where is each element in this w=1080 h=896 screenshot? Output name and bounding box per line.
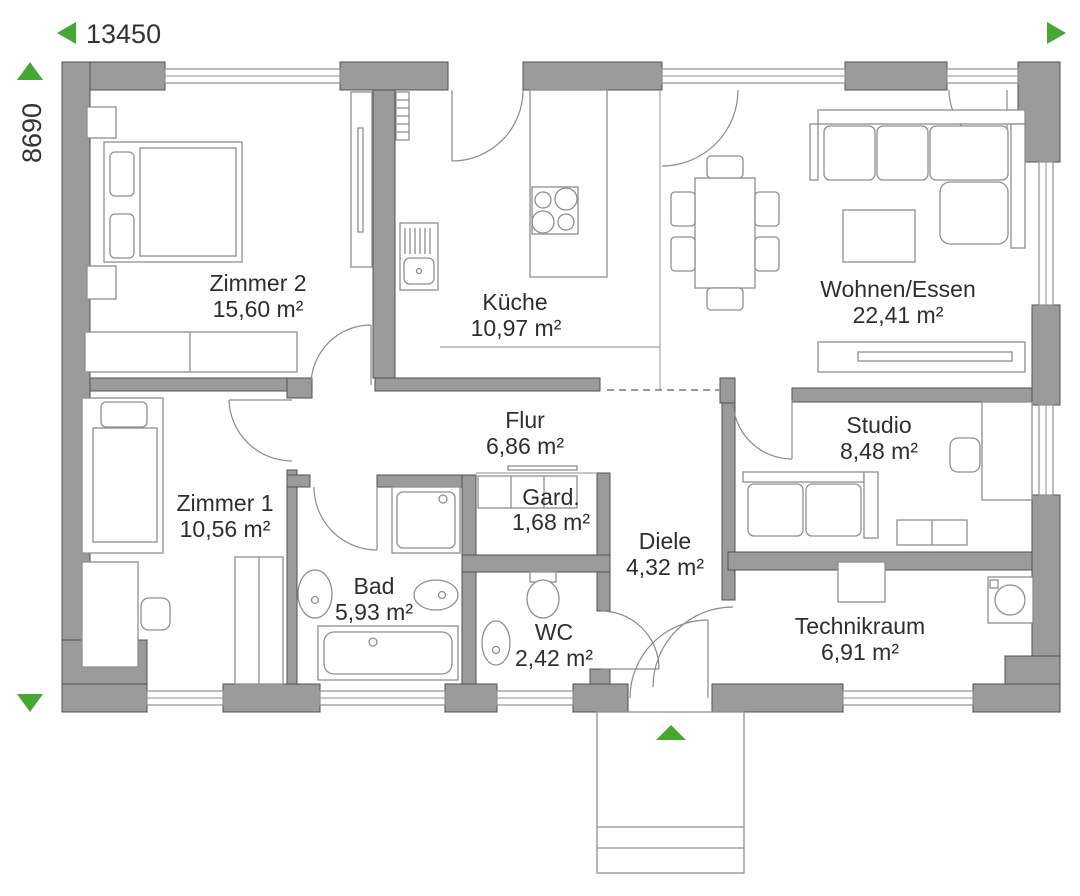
kitchen-counter bbox=[530, 90, 607, 277]
sideboard bbox=[85, 332, 297, 372]
bathtub bbox=[318, 626, 458, 680]
sofa bbox=[743, 472, 878, 538]
window bbox=[1039, 405, 1053, 495]
room-area: 2,42 m² bbox=[515, 645, 593, 671]
chair bbox=[707, 156, 743, 178]
room-area: 4,32 m² bbox=[626, 554, 704, 580]
room-name: Küche bbox=[482, 289, 547, 315]
room-name: Diele bbox=[639, 528, 691, 554]
nightstand bbox=[87, 107, 116, 138]
stove bbox=[532, 187, 578, 234]
room-area: 6,86 m² bbox=[486, 433, 564, 459]
room-name: Bad bbox=[354, 573, 395, 599]
pillow bbox=[110, 152, 134, 196]
room-name: Flur bbox=[505, 407, 545, 433]
mattress bbox=[93, 428, 157, 542]
chair bbox=[141, 598, 170, 630]
washbasin bbox=[414, 580, 458, 610]
chair bbox=[950, 438, 980, 472]
window bbox=[497, 691, 573, 705]
desk bbox=[82, 562, 138, 667]
window bbox=[1039, 162, 1053, 305]
room-name: Studio bbox=[846, 412, 911, 438]
room-name: WC bbox=[535, 619, 573, 645]
room-area: 1,68 m² bbox=[512, 509, 590, 535]
room-area: 8,48 m² bbox=[840, 438, 918, 464]
chair bbox=[671, 192, 695, 226]
room-label-studio: Studio 8,48 m² bbox=[840, 412, 918, 464]
room-label-gard: Gard. 1,68 m² bbox=[512, 484, 590, 535]
window bbox=[147, 691, 223, 705]
heating-unit bbox=[838, 562, 885, 602]
height-dimension-label: 8690 bbox=[17, 103, 47, 163]
room-label-zimmer1: Zimmer 1 10,56 m² bbox=[176, 490, 273, 542]
toilet bbox=[527, 580, 559, 618]
room-area: 5,93 m² bbox=[335, 599, 413, 625]
washbasin bbox=[298, 570, 332, 618]
window bbox=[843, 691, 973, 705]
dining-table bbox=[695, 178, 755, 288]
room-label-zimmer2: Zimmer 2 15,60 m² bbox=[209, 270, 306, 322]
sink-basin bbox=[404, 258, 434, 284]
closet-rail bbox=[508, 466, 577, 470]
window bbox=[165, 69, 340, 83]
desk bbox=[982, 402, 1032, 500]
floor-plan-canvas: 13450 8690 bbox=[0, 0, 1080, 896]
room-area: 10,56 m² bbox=[180, 516, 271, 542]
room-name: Wohnen/Essen bbox=[820, 276, 976, 302]
wardrobe-handle bbox=[358, 128, 363, 232]
chair bbox=[755, 192, 779, 226]
window bbox=[947, 69, 1018, 83]
mattress bbox=[140, 148, 236, 256]
floor-plan: 13450 8690 bbox=[0, 0, 1080, 896]
room-name: Technikraum bbox=[795, 613, 925, 639]
room-name: Zimmer 2 bbox=[209, 270, 306, 296]
chair bbox=[755, 237, 779, 271]
room-area: 15,60 m² bbox=[213, 296, 304, 322]
chair bbox=[671, 237, 695, 271]
width-dimension-label: 13450 bbox=[86, 19, 161, 49]
room-area: 6,91 m² bbox=[821, 639, 899, 665]
pillow bbox=[110, 214, 134, 258]
nightstand bbox=[87, 266, 116, 299]
coffee-table bbox=[843, 210, 915, 262]
window bbox=[320, 691, 445, 705]
chair bbox=[707, 288, 743, 310]
shower bbox=[392, 487, 460, 553]
tv bbox=[858, 352, 1012, 361]
room-area: 22,41 m² bbox=[853, 302, 944, 328]
window bbox=[662, 69, 845, 83]
room-name: Gard. bbox=[522, 484, 580, 510]
room-name: Zimmer 1 bbox=[176, 490, 273, 516]
pillow bbox=[101, 402, 147, 427]
washbasin bbox=[482, 621, 510, 665]
room-area: 10,97 m² bbox=[471, 315, 562, 341]
